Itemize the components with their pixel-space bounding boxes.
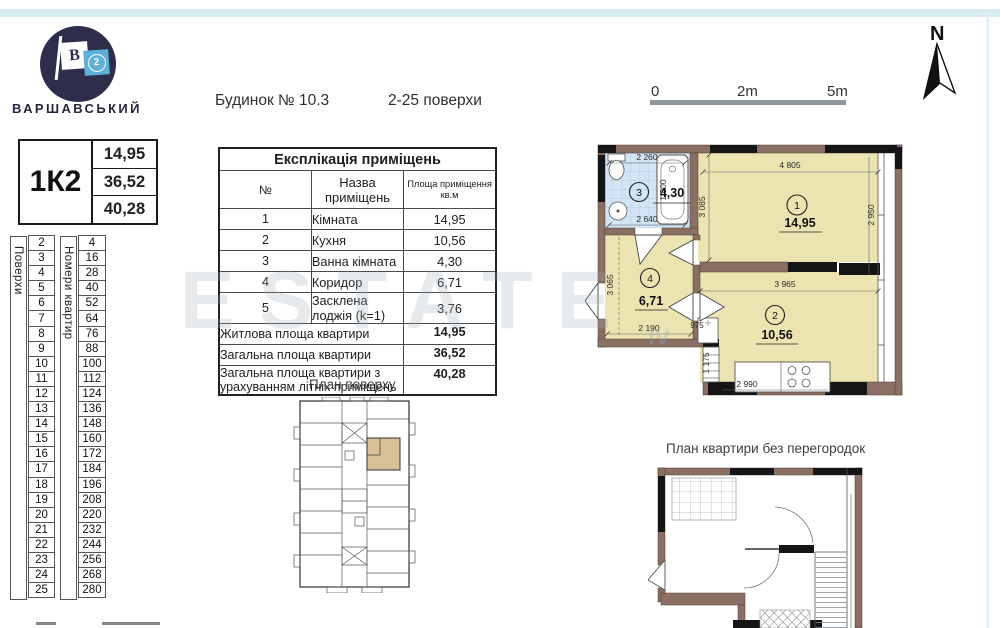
floors-column: 2345678910111213141516171819202122232425 [28,236,55,598]
apartment-number-cell: 148 [78,416,106,432]
floor-cell: 16 [28,446,55,462]
tile-grid-area [672,478,736,520]
dim-corridor-left: 3 065 [605,274,615,296]
col-header-area: Площа приміщення кв.м [404,171,496,209]
svg-text:10,56: 10,56 [761,328,792,342]
explication-total-row: Загальна площа квартири 36,52 [219,345,496,366]
scale-end: 5m [827,83,848,100]
unit-code: 1К2 [20,141,93,223]
scale-mid: 2m [737,83,758,100]
col-header-num: № [219,171,311,209]
floor-cell: 3 [28,250,55,266]
apartment-number-cell: 40 [78,280,106,296]
svg-text:14,95: 14,95 [784,216,815,230]
toilet-icon [608,154,625,180]
dim-corridor-bottom: 2 190 [638,323,660,333]
col-header-name: Назва приміщень [311,171,403,209]
floor-cell: 4 [28,265,55,281]
floor-cell: 19 [28,492,55,508]
apartment-number-cell: 196 [78,477,106,493]
floor-cell: 22 [28,537,55,553]
dim-room1-top: 4 805 [779,160,801,170]
apartment-number-cell: 268 [78,567,106,583]
apartment-number-cell: 4 [78,235,106,251]
flag-letter: В [69,46,81,65]
highlighted-unit [367,438,400,470]
floor-cell: 7 [28,310,55,326]
floor-cell: 17 [28,461,55,477]
apartment-numbers-column: 4162840526476881001121241361481601721841… [78,236,106,598]
floor-cell: 5 [28,280,55,296]
floor-cell: 25 [28,582,55,598]
scale-zero: 0 [651,83,659,100]
apartment-number-cell: 160 [78,431,106,447]
apartment-number-cell: 208 [78,492,106,508]
dim-room1-right: 2 950 [866,204,876,226]
apartment-number-cell: 124 [78,386,106,402]
apartment-number-cell: 76 [78,326,106,342]
apartment-number-cell: 64 [78,310,106,326]
floor-cell: 12 [28,386,55,402]
explication-title: Експлікація приміщень [219,148,496,171]
unit-total-summer-area: 40,28 [93,195,156,223]
explication-row: 4 Коридор 6,71 [219,272,496,293]
floor-cell: 13 [28,401,55,417]
loggia-hatch [815,552,847,628]
building-title: Будинок № 10.3 [215,92,329,110]
dim-bath-bottom: 2 640 [636,214,658,224]
cropped-text-fragment [36,622,56,625]
svg-text:4: 4 [647,273,653,285]
compass-needle-icon [924,44,955,98]
cropped-text-fragment [102,622,160,625]
apartment-number-cell: 136 [78,401,106,417]
svg-text:6,71: 6,71 [639,294,663,308]
apartment-number-cell: 16 [78,250,106,266]
unit-card: 1К2 14,95 36,52 40,28 [18,139,158,225]
apartment-number-cell: 280 [78,582,106,598]
floor-cell: 10 [28,356,55,372]
floor-cell: 11 [28,371,55,387]
dim-room1-left: 3 085 [697,196,707,218]
svg-text:3: 3 [636,187,642,199]
right-edge-line [986,14,989,628]
compass-label: N [930,23,944,45]
apartment-number-cell: 220 [78,507,106,523]
apartment-numbers-label: Номери квартир [62,246,74,340]
dim-kitchen-step: 1 175 [701,352,711,374]
open-plan-label: План квартири без перегородок [666,441,865,456]
svg-text:1: 1 [794,200,800,212]
apartment-number-cell: 256 [78,552,106,568]
top-band [0,9,1000,17]
hatch-area [760,610,810,628]
dim-bath-top: 2 260 [636,152,658,162]
entrance-door-arrow [585,283,598,319]
explication-total-row: Житлова площа квартири 14,95 [219,324,496,345]
explication-row: 2 Кухня 10,56 [219,230,496,251]
compass: N [916,14,970,108]
explication-row: 1 Кімната 14,95 [219,209,496,230]
apartment-number-cell: 28 [78,265,106,281]
building-floor-plan [292,397,417,593]
floor-plan-label: План поверху [309,377,396,392]
scale-bar [650,100,846,105]
floors-range: 2-25 поверхи [388,92,482,110]
apartment-plan: 2 260 2 640 1 800 4 805 3 085 2 950 3 06… [585,135,965,415]
apartment-number-cell: 112 [78,371,106,387]
floor-cell: 8 [28,326,55,342]
brand-name: ВАРШАВСЬКИЙ [12,101,170,116]
open-plan-entrance-arrow [648,560,665,590]
explication-row: 5 Засклена лоджія (k=1) 3,76 [219,293,496,324]
floor-cell: 2 [28,235,55,251]
unit-living-area: 14,95 [93,141,156,168]
floor-cell: 15 [28,431,55,447]
floor-cell: 23 [28,552,55,568]
explication-row: 3 Ванна кімната 4,30 [219,251,496,272]
floor-cell: 9 [28,341,55,357]
apartment-number-cell: 244 [78,537,106,553]
plan-sheet: В 2 ВАРШАВСЬКИЙ 1К2 14,95 36,52 40,28 По… [0,0,1000,628]
floors-label: Поверхи [12,246,24,295]
floor-cell: 14 [28,416,55,432]
apartment-number-cell: 184 [78,461,106,477]
floor-cell: 24 [28,567,55,583]
floor-cell: 21 [28,522,55,538]
apartment-number-cell: 88 [78,341,106,357]
dim-kitchen-niche: 975 [690,321,704,330]
floor-cell: 6 [28,295,55,311]
svg-text:4,30: 4,30 [660,186,684,200]
dim-kitchen-counter: 2 990 [736,379,758,389]
sink-icon [609,202,627,220]
open-plan-drawing [648,460,882,628]
apartment-number-cell: 232 [78,522,106,538]
floor-cell: 18 [28,477,55,493]
svg-text:2: 2 [772,310,778,322]
explication-table: Експлікація приміщень № Назва приміщень … [218,147,497,396]
apartment-number-cell: 52 [78,295,106,311]
floor-cell: 20 [28,507,55,523]
apartment-number-cell: 172 [78,446,106,462]
unit-total-area: 36,52 [93,168,156,196]
dim-kitchen-top: 3 965 [774,279,796,289]
flag-number: 2 [87,53,106,72]
flag-number-badge: 2 [83,49,110,76]
apartment-number-cell: 100 [78,356,106,372]
